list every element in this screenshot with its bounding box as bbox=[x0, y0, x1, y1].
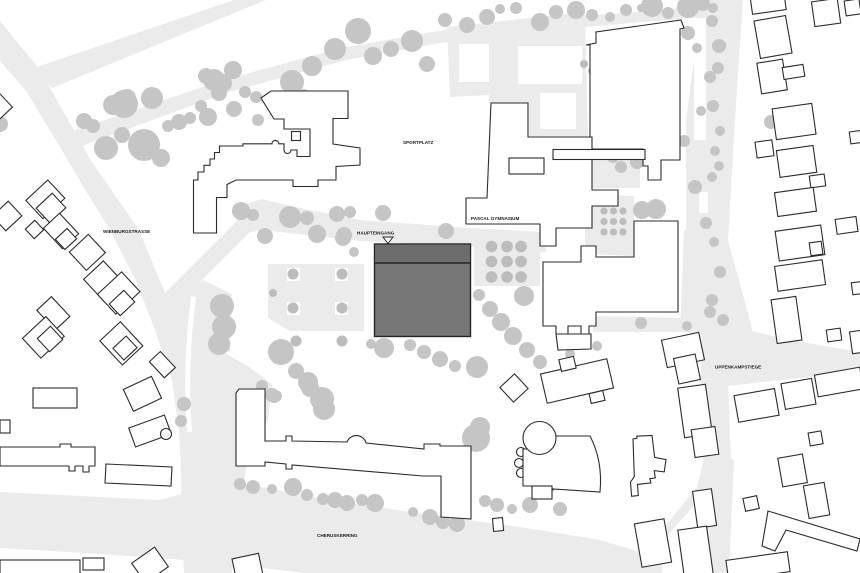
svg-text:CHERUSKERRING: CHERUSKERRING bbox=[317, 533, 358, 538]
svg-text:UPPENKAMPSTIEGE: UPPENKAMPSTIEGE bbox=[715, 365, 761, 370]
svg-text:SPORTPLATZ: SPORTPLATZ bbox=[403, 140, 433, 145]
svg-text:WIENBURGSTRASSE: WIENBURGSTRASSE bbox=[103, 229, 150, 234]
svg-text:HAUPTEINGANG: HAUPTEINGANG bbox=[357, 231, 395, 236]
svg-text:PASCAL GYMNASIUM: PASCAL GYMNASIUM bbox=[471, 216, 519, 221]
